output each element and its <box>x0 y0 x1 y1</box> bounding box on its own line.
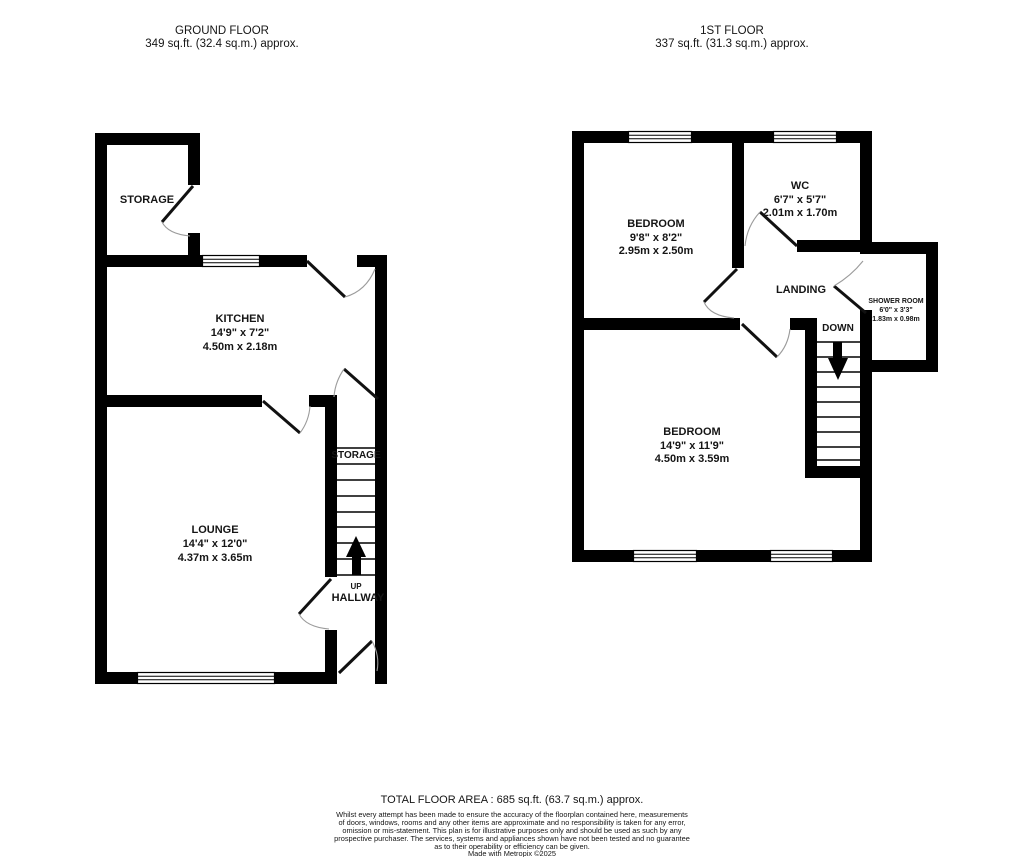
bedroom2-dims-metric: 4.50m x 3.59m <box>655 453 730 465</box>
kitchen-hallway-door <box>334 369 378 399</box>
wall <box>260 255 307 267</box>
credit-line: Made with Metropix ©2025 <box>468 849 556 857</box>
wall <box>833 550 872 562</box>
lounge-window <box>138 673 275 684</box>
floorplan-drawing: GROUND FLOOR 349 sq.ft. (32.4 sq.m.) app… <box>0 0 1024 857</box>
entrance-door <box>339 641 378 673</box>
kitchen-dims-metric: 4.50m x 2.18m <box>203 341 278 353</box>
kitchen-dims-imperial: 14'9" x 7'2" <box>211 327 269 339</box>
bedroom2-label: BEDROOM <box>663 426 720 438</box>
lounge-dims-imperial: 14'4" x 12'0" <box>183 538 248 550</box>
wall <box>375 255 387 684</box>
bedroom2-window-left <box>634 551 697 562</box>
up-arrow-icon <box>346 536 366 575</box>
bedroom1-window <box>629 132 692 143</box>
understairs-storage-label: STORAGE <box>331 450 381 461</box>
shower-room-label: SHOWER ROOM <box>868 298 923 305</box>
wall <box>95 133 200 145</box>
wall <box>732 131 744 268</box>
wc-dims-metric: 2.01m x 1.70m <box>763 207 838 219</box>
wall <box>188 133 200 185</box>
wall <box>860 310 872 562</box>
bedroom2-dims-imperial: 14'9" x 11'9" <box>660 440 724 452</box>
wall <box>572 131 628 143</box>
down-label: DOWN <box>822 323 854 334</box>
storage-label: STORAGE <box>120 194 174 206</box>
bedroom1-label: BEDROOM <box>627 218 684 230</box>
wall <box>275 672 337 684</box>
wall <box>95 395 262 407</box>
wc-label: WC <box>791 180 809 192</box>
bedroom1-dims-imperial: 9'8" x 8'2" <box>630 232 682 244</box>
ground-floor-area: 349 sq.ft. (32.4 sq.m.) approx. <box>145 38 298 50</box>
wall <box>805 318 817 478</box>
wall <box>926 242 938 372</box>
first-floor-plan: BEDROOM 9'8" x 8'2" 2.95m x 2.50m WC 6'7… <box>572 131 938 562</box>
wall <box>572 318 740 330</box>
bedroom1-door <box>704 269 737 318</box>
shower-room-door <box>834 261 866 313</box>
down-arrow-icon <box>828 342 848 380</box>
wall <box>572 131 584 562</box>
ground-floor-title: GROUND FLOOR <box>175 25 269 37</box>
wall <box>805 466 872 478</box>
wc-window <box>774 132 837 143</box>
bedroom2-door <box>742 324 790 357</box>
wall <box>572 550 633 562</box>
first-floor-area: 337 sq.ft. (31.3 sq.m.) approx. <box>655 38 808 50</box>
floorplan-page: GROUND FLOOR 349 sq.ft. (32.4 sq.m.) app… <box>0 0 1024 857</box>
first-floor-title: 1ST FLOOR <box>700 25 764 37</box>
wall <box>860 131 872 254</box>
wall <box>95 133 107 684</box>
lounge-hallway-door <box>299 579 331 629</box>
lounge-door <box>263 401 310 433</box>
wall <box>860 360 938 372</box>
lounge-dims-metric: 4.37m x 3.65m <box>178 552 253 564</box>
wc-dims-imperial: 6'7" x 5'7" <box>774 194 826 206</box>
wall <box>325 395 337 577</box>
kitchen-window <box>203 256 260 267</box>
wall <box>797 240 860 252</box>
hallway-label: HALLWAY <box>332 592 385 604</box>
bedroom1-dims-metric: 2.95m x 2.50m <box>619 245 694 257</box>
wall <box>697 550 770 562</box>
wall <box>95 255 202 267</box>
footer: TOTAL FLOOR AREA : 685 sq.ft. (63.7 sq.m… <box>334 794 690 857</box>
up-label: UP <box>350 582 362 591</box>
shower-room-dims-imperial: 6'0" x 3'3" <box>879 307 912 314</box>
wall <box>95 672 137 684</box>
total-floor-area: TOTAL FLOOR AREA : 685 sq.ft. (63.7 sq.m… <box>381 794 644 806</box>
landing-label: LANDING <box>776 284 826 296</box>
bedroom2-window-right <box>771 551 833 562</box>
ground-floor-plan: STORAGE KITCHEN 14'9" x 7'2" 4.50m x 2.1… <box>95 133 387 684</box>
kitchen-label: KITCHEN <box>216 313 265 325</box>
shower-room-dims-metric: 1.83m x 0.98m <box>872 316 919 323</box>
lounge-label: LOUNGE <box>191 524 238 536</box>
